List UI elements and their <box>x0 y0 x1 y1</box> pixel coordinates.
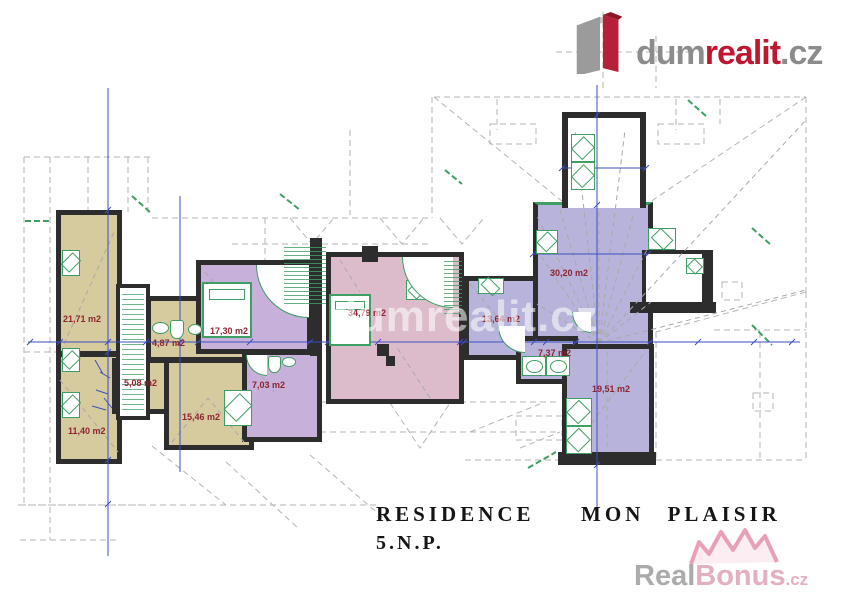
window-icon <box>62 348 80 372</box>
realbonus-part-cz: .cz <box>785 570 808 589</box>
area-label: 30,20 m2 <box>550 268 588 278</box>
toilet-icon <box>170 320 184 339</box>
sink-icon <box>188 324 202 335</box>
window-icon <box>566 426 592 454</box>
watermark-realbonus: RealBonus.cz <box>634 560 808 593</box>
window-icon <box>648 228 676 250</box>
window-icon <box>686 258 704 274</box>
sink-icon <box>522 356 546 376</box>
toilet-icon <box>268 356 281 373</box>
window-icon <box>62 392 80 418</box>
window-icon <box>224 390 252 426</box>
realbonus-part-bonus: Bonus <box>695 560 785 592</box>
area-label: 11,40 m2 <box>68 426 106 436</box>
sink-icon <box>282 357 296 367</box>
area-label: 15,46 m2 <box>182 412 220 422</box>
area-label: 4,87 m2 <box>152 338 185 348</box>
window-icon <box>566 398 592 426</box>
stair-treads-icon <box>284 244 326 306</box>
watermark-dumrealit: dumrealit.cz <box>330 292 599 342</box>
logo-part-dum: dum <box>636 34 705 72</box>
area-label: 7,37 m2 <box>538 348 571 358</box>
residence-name: RESIDENCE MON PLAISIR <box>376 502 781 527</box>
realbonus-part-real: Real <box>634 560 695 592</box>
area-label: 17,30 m2 <box>210 326 248 336</box>
sink-icon <box>546 356 570 376</box>
logo-part-realit: realit <box>705 34 780 72</box>
window-icon <box>571 162 595 190</box>
logo-part-cz: .cz <box>780 34 822 72</box>
window-icon <box>571 134 595 162</box>
area-label: 5,08 m2 <box>124 378 157 388</box>
area-label: 19,51 m2 <box>592 384 630 394</box>
window-icon <box>536 230 558 254</box>
dumrealit-logo: dumrealit.cz <box>576 10 822 74</box>
floor-plan-page: 21,71 m2 11,40 m2 4,87 m2 5,08 m2 15,46 … <box>0 0 849 600</box>
area-label: 21,71 m2 <box>63 314 101 324</box>
window-icon <box>62 250 80 276</box>
sink-icon <box>152 322 169 334</box>
dumrealit-logo-text: dumrealit.cz <box>636 36 822 74</box>
area-label: 7,03 m2 <box>252 380 285 390</box>
dumrealit-logo-icon <box>576 10 626 74</box>
